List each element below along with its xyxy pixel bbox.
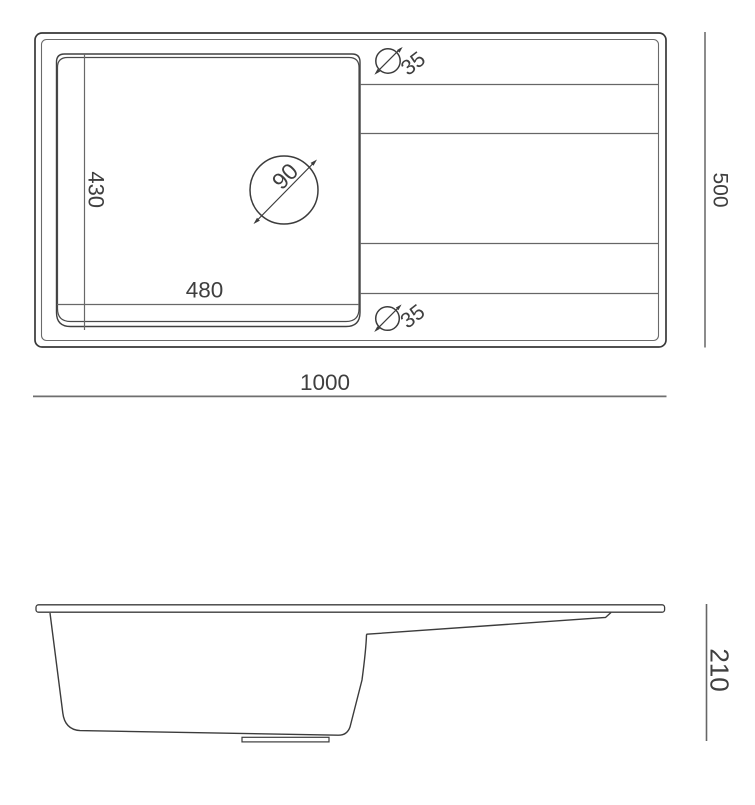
svg-text:210: 210 xyxy=(705,648,735,691)
svg-text:1000: 1000 xyxy=(300,370,350,395)
svg-text:480: 480 xyxy=(186,277,224,302)
svg-text:500: 500 xyxy=(709,172,732,207)
svg-text:430: 430 xyxy=(84,171,109,208)
